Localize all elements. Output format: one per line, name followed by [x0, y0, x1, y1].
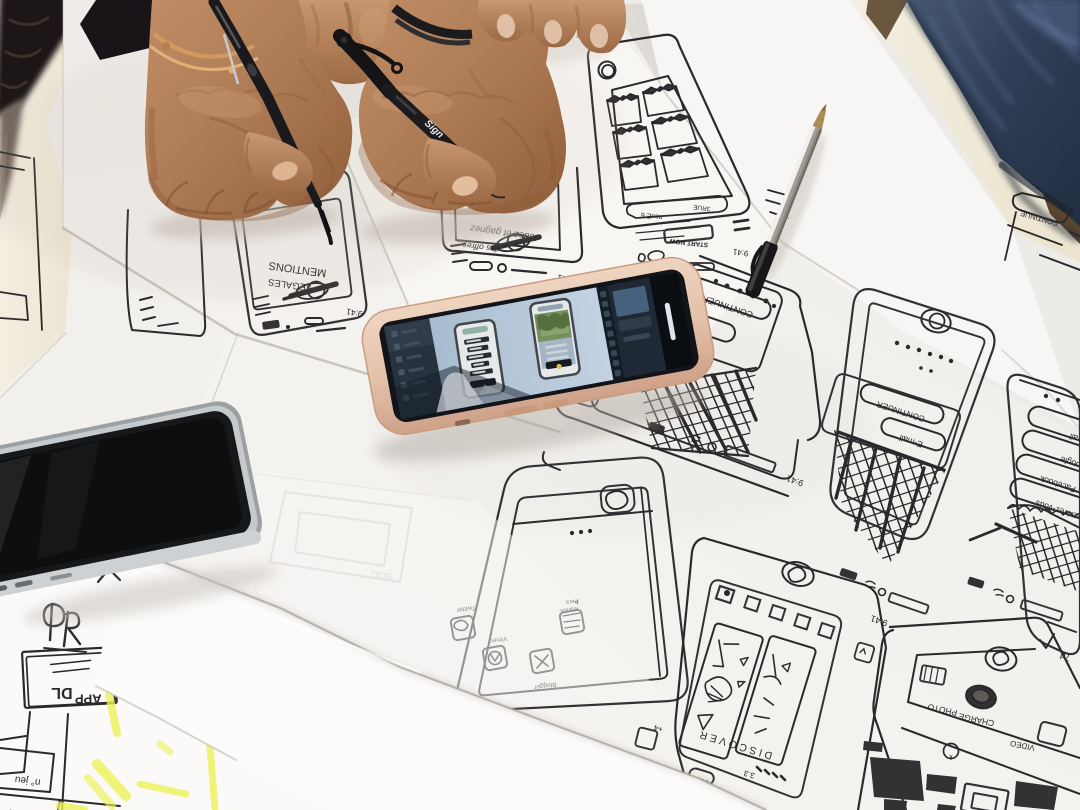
svg-text:DL: DL: [51, 684, 73, 701]
svg-text:APP: APP: [75, 692, 102, 707]
